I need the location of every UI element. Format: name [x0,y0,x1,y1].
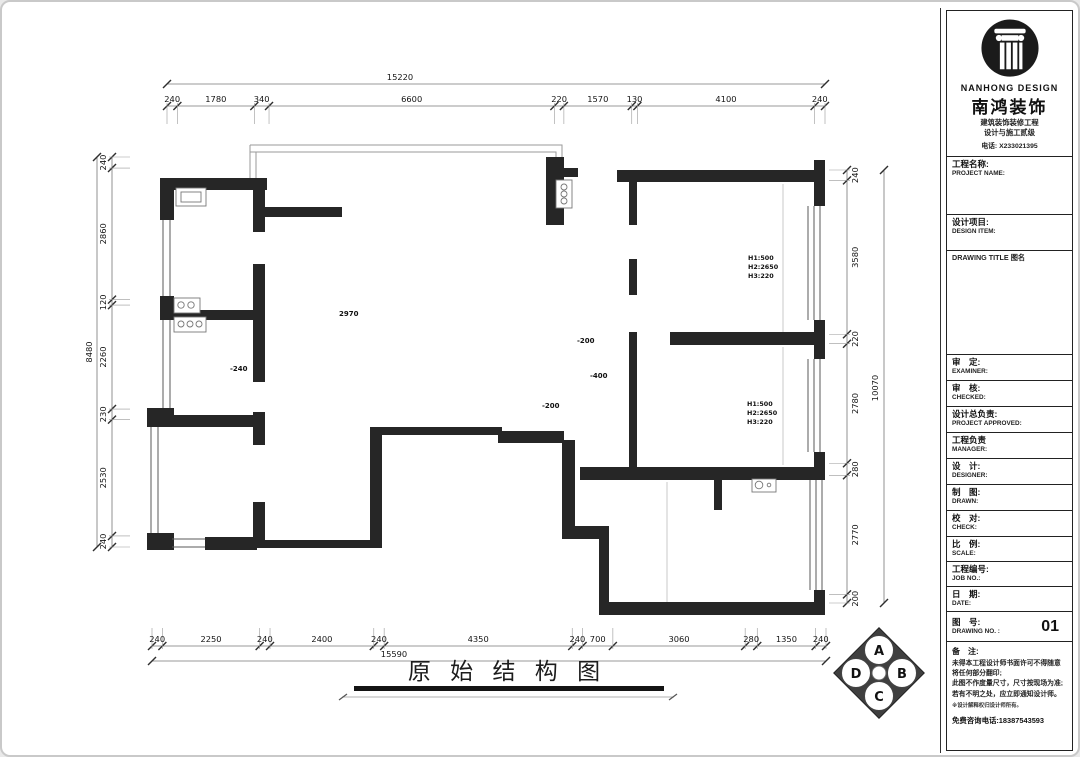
faint-lines [667,184,783,602]
title-underline-bar [354,686,664,691]
elevation-letter-a: A [874,644,884,659]
brand-phone: 电话: X233021395 [981,140,1037,150]
svg-text:H1:500: H1:500 [747,400,773,408]
svg-text:130: 130 [627,94,643,104]
walls [147,157,825,615]
window-annotation-1: H1:500 H2:2650 H3:220 [748,254,779,280]
svg-text:220: 220 [551,94,567,104]
nanhong-logo-icon [975,16,1045,82]
dimension-chain-left: 2402860120226023025302408480 [84,153,130,551]
svg-text:1350: 1350 [776,634,797,644]
svg-text:3060: 3060 [668,634,689,644]
svg-text:H1:500: H1:500 [748,254,774,262]
svg-text:1780: 1780 [205,94,226,104]
svg-text:1570: 1570 [587,94,608,104]
field-manager: 工程负责 MANAGER: [947,433,1072,459]
svg-text:240: 240 [149,634,165,644]
field-job-no: 工程编号: JOB NO.: [947,562,1072,587]
svg-text:240: 240 [812,94,828,104]
level-mark: -200 [577,337,595,345]
svg-text:H3:220: H3:220 [748,272,774,280]
field-date: 日 期: DATE: [947,587,1072,612]
brand-cert-line2: 设计与施工贰级 [984,128,1035,138]
level-mark: -200 [542,402,560,410]
dimension-chain-top: 240178034066002201570130410024015220 [163,72,829,124]
svg-text:2250: 2250 [200,634,221,644]
elevation-letter-d: D [851,667,862,682]
svg-text:240: 240 [98,534,108,550]
ceiling-height-label: 2970 [339,310,359,318]
svg-text:240: 240 [98,155,108,171]
svg-text:2260: 2260 [98,346,108,367]
svg-text:340: 340 [254,94,270,104]
range-hood-inner-icon [181,192,201,202]
elevation-letter-c: C [874,690,884,705]
floor-plan-drawing: 2970 -240 -200 -400 -200 H1:500 H2:2650 … [2,2,943,757]
svg-text:700: 700 [590,634,606,644]
svg-text:240: 240 [257,634,273,644]
field-drawn: 制 图: DRAWN: [947,485,1072,511]
drawing-number-value: 01 [1041,618,1059,636]
svg-text:240: 240 [569,634,585,644]
field-drawing-title: DRAWING TITLE 图名 [947,251,1072,355]
svg-text:2530: 2530 [98,467,108,488]
svg-text:4350: 4350 [468,634,489,644]
svg-text:280: 280 [743,634,759,644]
field-drawing-no: 图 号: DRAWING NO. : 01 [947,612,1072,642]
field-project-name: 工程名称: PROJECT NAME: [947,157,1072,215]
svg-text:H2:2650: H2:2650 [747,409,778,417]
field-designer: 设 计: DESIGNER: [947,459,1072,485]
terrace-lines [250,145,562,179]
dimension-chain-right: 24035802202780280277020010070 [829,166,888,607]
field-check: 校 对: CHECK: [947,511,1072,537]
brand-name-cn: 南鸿装饰 [972,93,1048,118]
level-mark: -240 [230,365,248,373]
title-block: NANHONG DESIGN 南鸿装饰 建筑装饰装修工程 设计与施工贰级 电话:… [946,10,1073,751]
brand-name-en: NANHONG DESIGN [961,83,1059,93]
field-scale: 比 例: SCALE: [947,537,1072,562]
brand-cert-line1: 建筑装饰装修工程 [980,118,1038,128]
svg-text:2400: 2400 [311,634,332,644]
svg-text:2780: 2780 [850,393,860,414]
level-mark: -400 [590,372,608,380]
svg-text:15220: 15220 [387,72,413,82]
brand-panel: NANHONG DESIGN 南鸿装饰 建筑装饰装修工程 设计与施工贰级 电话:… [947,11,1072,157]
field-checked: 审 核: CHECKED: [947,381,1072,407]
svg-text:240: 240 [813,634,829,644]
drawing-title: 原 始 结 构 图 [339,659,677,700]
svg-text:H3:220: H3:220 [747,418,773,426]
field-design-item: 设计项目: DESIGN ITEM: [947,215,1072,251]
field-notes: 备 注: 未得本工程设计师书面许可不得随意将任何部分翻印; 此图不作度量尺寸，尺… [947,642,1072,750]
svg-text:2860: 2860 [98,223,108,244]
elevation-index-symbol: A B C D [834,628,925,719]
svg-text:15590: 15590 [381,649,407,659]
field-project-approved: 设计总负责: PROJECT APPROVED: [947,407,1072,433]
sheet-divider [940,8,941,753]
window-lines [151,206,822,590]
svg-text:240: 240 [371,634,387,644]
svg-text:10070: 10070 [870,375,880,401]
field-examiner: 审 定: EXAMINER: [947,355,1072,381]
svg-text:3580: 3580 [850,247,860,268]
elevation-letter-b: B [897,667,907,682]
svg-text:6600: 6600 [401,94,422,104]
window-annotation-2: H1:500 H2:2650 H3:220 [747,400,778,426]
svg-text:230: 230 [98,406,108,422]
svg-text:8480: 8480 [84,341,94,362]
svg-text:200: 200 [850,591,860,607]
svg-text:H2:2650: H2:2650 [748,263,779,271]
drawing-title-text: 原 始 结 构 图 [408,659,606,685]
consult-phone: 免费咨询电话:18387543593 [952,715,1067,726]
svg-text:240: 240 [164,94,180,104]
svg-text:120: 120 [98,294,108,310]
svg-text:2770: 2770 [850,524,860,545]
svg-text:220: 220 [850,331,860,347]
drawing-sheet: 2970 -240 -200 -400 -200 H1:500 H2:2650 … [0,0,1080,757]
svg-text:4100: 4100 [715,94,736,104]
svg-text:280: 280 [850,461,860,477]
svg-text:240: 240 [850,167,860,183]
